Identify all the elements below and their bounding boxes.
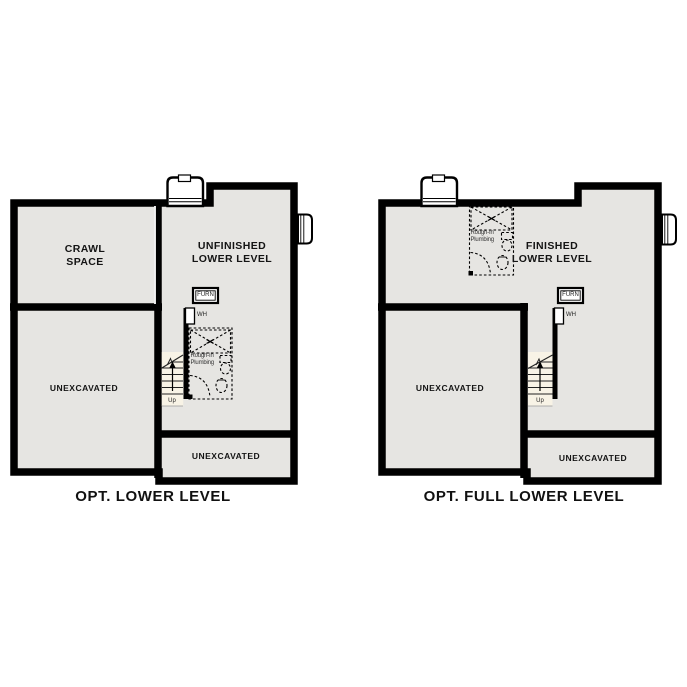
plan-caption: OPT. LOWER LEVEL bbox=[33, 488, 273, 506]
window-well-icon bbox=[662, 215, 676, 245]
stairs-up-label: Up bbox=[158, 398, 186, 405]
crawl-space-label: CRAWL SPACE bbox=[25, 243, 145, 269]
floorplan-drawing bbox=[0, 0, 687, 687]
water-heater-label: WH bbox=[566, 312, 576, 319]
unexcavated-label: UNEXCAVATED bbox=[390, 383, 510, 393]
rough-in-plumbing-label: Rough-In Plumbing bbox=[191, 353, 214, 367]
plan-opt-lower-level bbox=[10, 175, 312, 481]
chimney-icon bbox=[168, 175, 204, 206]
furnace-label: FURN bbox=[558, 292, 583, 299]
plan-opt-full-lower-level bbox=[378, 175, 676, 481]
water-heater-label: WH bbox=[197, 312, 207, 319]
unexcavated-label: UNEXCAVATED bbox=[24, 383, 144, 393]
floorplan-sheet: CRAWL SPACE UNFINISHED LOWER LEVEL UNEXC… bbox=[0, 0, 687, 687]
plan-caption: OPT. FULL LOWER LEVEL bbox=[404, 488, 644, 506]
chimney-icon bbox=[422, 175, 458, 206]
water-heater-icon bbox=[186, 308, 195, 324]
unexcavated-label: UNEXCAVATED bbox=[166, 451, 286, 461]
rough-in-plumbing-label: Rough-In Plumbing bbox=[471, 230, 494, 244]
unexcavated-label: UNEXCAVATED bbox=[533, 453, 653, 463]
stairs-up-label: Up bbox=[526, 398, 554, 405]
finished-lower-level-label: FINISHED LOWER LEVEL bbox=[492, 240, 612, 266]
unfinished-lower-level-label: UNFINISHED LOWER LEVEL bbox=[172, 240, 292, 266]
furnace-label: FURN bbox=[193, 292, 218, 299]
window-well-icon bbox=[298, 215, 312, 244]
water-heater-icon bbox=[555, 308, 564, 324]
